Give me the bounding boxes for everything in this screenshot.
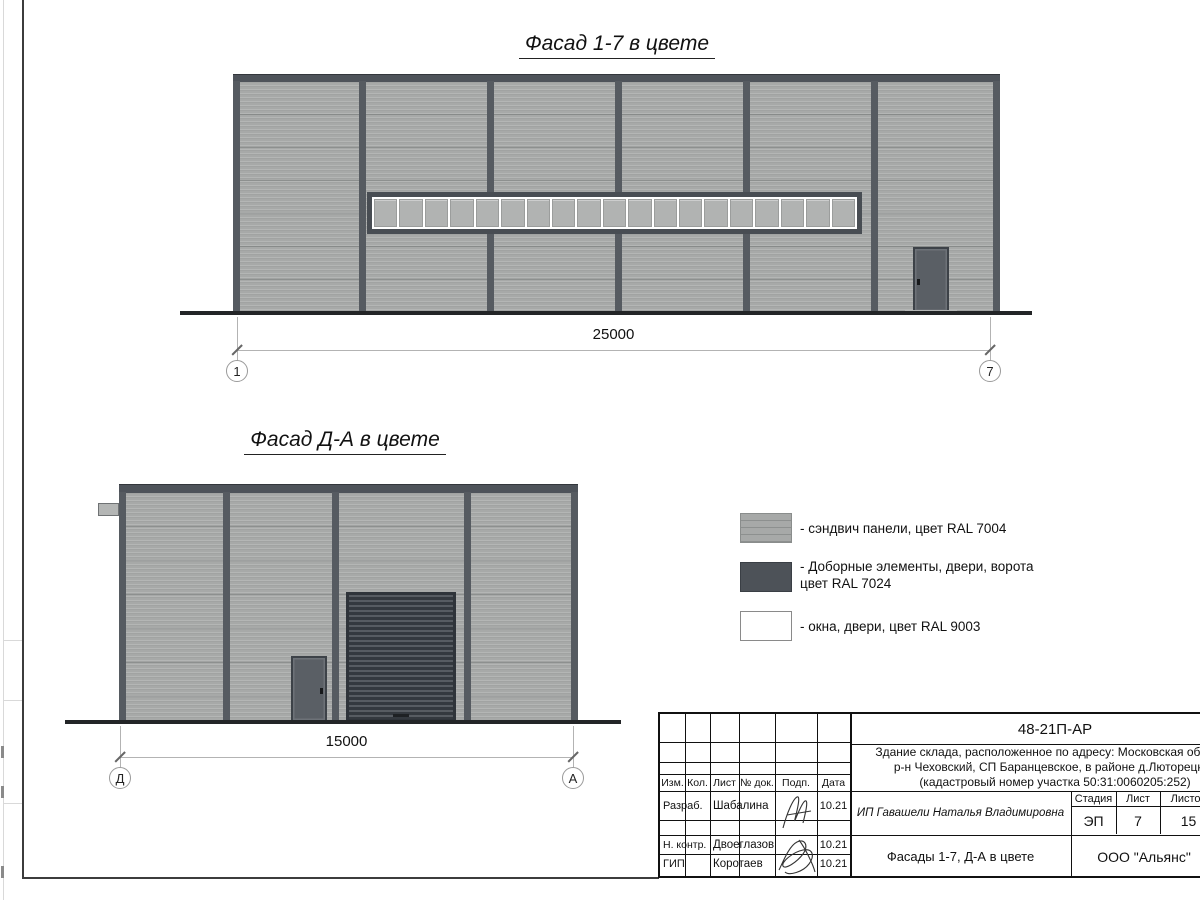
window-pane xyxy=(476,199,499,227)
facade-mullion xyxy=(332,492,339,722)
facade-d-a-title: Фасад Д-А в цвете xyxy=(180,428,510,452)
window-pane xyxy=(527,199,550,227)
sheets-label: Листов xyxy=(1160,791,1200,806)
project-description: Здание склада, расположенное по адресу: … xyxy=(852,745,1200,791)
roller-gate-handle xyxy=(393,714,409,717)
doc-number: 48-21П-АР xyxy=(850,714,1200,744)
window-pane xyxy=(832,199,855,227)
sheet-title: Фасады 1-7, Д-А в цвете xyxy=(850,835,1071,878)
col-data: Дата xyxy=(817,774,850,791)
parapet-band xyxy=(119,484,578,493)
facade-mullion xyxy=(359,81,366,313)
roller-gate xyxy=(346,592,456,722)
dimension-value: 15000 xyxy=(120,733,573,750)
margin-stamp-mark xyxy=(1,866,4,878)
col-podp: Подп. xyxy=(775,774,817,791)
titleblock-line xyxy=(660,762,850,763)
title-block: Изм. Кол. Лист № док. Подп. Дата Разраб.… xyxy=(658,712,1200,878)
description-line3: (кадастровый номер участка 50:31:0060205… xyxy=(852,775,1200,790)
margin-divider xyxy=(4,700,22,701)
signature-korotaev xyxy=(775,836,819,878)
legend-swatch-trim xyxy=(740,562,792,592)
window-pane xyxy=(755,199,778,227)
legend-label-trim-line2: цвет RAL 7024 xyxy=(800,576,891,591)
axis-label: 7 xyxy=(986,364,993,379)
facade-1-7-title-text: Фасад 1-7 в цвете xyxy=(519,32,715,59)
axis-bubble-7: 7 xyxy=(979,360,1001,382)
window-pane xyxy=(399,199,422,227)
margin-stamp-mark xyxy=(1,786,4,798)
entrance-door xyxy=(913,247,949,313)
col-doc: № док. xyxy=(739,774,775,791)
facade-1-7-elevation xyxy=(233,74,1000,313)
window-pane xyxy=(603,199,626,227)
margin-divider xyxy=(4,640,22,641)
row-date: 10.21 xyxy=(817,854,850,874)
drawing-sheet: Фасад 1-7 в цвете 25000 1 7 Фасад Д-А в … xyxy=(0,0,1200,900)
margin-stamp-mark xyxy=(1,746,4,758)
customer-name: ИП Гавашели Наталья Владимировна xyxy=(850,791,1071,835)
door-handle xyxy=(320,688,323,694)
axis-label: Д xyxy=(116,771,125,786)
facade-d-a-title-text: Фасад Д-А в цвете xyxy=(244,428,446,455)
description-line2: р-н Чеховский, СП Баранцевское, в районе… xyxy=(852,760,1200,775)
window-pane xyxy=(577,199,600,227)
extension-line xyxy=(573,726,574,767)
ground-line xyxy=(65,720,621,724)
legend-label-windows: - окна, двери, цвет RAL 9003 xyxy=(800,619,980,634)
legend-label-panels: - сэндвич панели, цвет RAL 7004 xyxy=(800,521,1006,536)
extension-line xyxy=(990,317,991,361)
window-pane xyxy=(679,199,702,227)
facade-mullion xyxy=(871,81,878,313)
window-pane xyxy=(450,199,473,227)
window-panes xyxy=(374,199,855,227)
titleblock-line xyxy=(660,742,850,743)
axis-label: А xyxy=(569,771,578,786)
axis-bubble-1: 1 xyxy=(226,360,248,382)
corner-trim-left xyxy=(233,81,240,313)
facade-mullion xyxy=(223,492,230,722)
window-pane xyxy=(374,199,397,227)
window-pane xyxy=(654,199,677,227)
col-izm: Изм. xyxy=(660,774,685,791)
facade-d-a-elevation xyxy=(119,484,578,722)
frame-left-line xyxy=(22,0,24,879)
col-kol: Кол. xyxy=(685,774,710,791)
dimension-line xyxy=(237,350,990,351)
dimension-line xyxy=(120,757,573,758)
window-pane xyxy=(425,199,448,227)
window-pane xyxy=(806,199,829,227)
row-date: 10.21 xyxy=(817,791,850,820)
legend-label-trim-line1: - Доборные элементы, двери, ворота xyxy=(800,559,1034,574)
frame-bottom-line xyxy=(22,877,659,879)
sheet-edge-line xyxy=(3,0,4,900)
sheet-value: 7 xyxy=(1116,806,1160,835)
stage-label: Стадия xyxy=(1071,791,1116,806)
corner-trim-right xyxy=(993,81,1000,313)
corner-trim-left xyxy=(119,492,126,722)
ground-line xyxy=(180,311,1032,315)
company-name: ООО "Альянс" xyxy=(1071,835,1200,878)
titleblock-line xyxy=(660,820,850,821)
row-date: 10.21 xyxy=(817,835,850,854)
dimension-value: 25000 xyxy=(237,326,990,343)
stage-value: ЭП xyxy=(1071,806,1116,835)
window-pane xyxy=(552,199,575,227)
description-line1: Здание склада, расположенное по адресу: … xyxy=(852,745,1200,760)
gutter-outlet xyxy=(98,503,119,516)
axis-bubble-a: А xyxy=(562,767,584,789)
facade-1-7-title: Фасад 1-7 в цвете xyxy=(400,32,834,56)
signature-shabalina xyxy=(777,793,817,835)
facade-mullion xyxy=(464,492,471,722)
sheets-value: 15 xyxy=(1160,806,1200,835)
window-pane xyxy=(730,199,753,227)
door-handle xyxy=(917,279,920,285)
window-pane xyxy=(781,199,804,227)
sheet-label: Лист xyxy=(1116,791,1160,806)
corner-trim-right xyxy=(571,492,578,722)
margin-divider xyxy=(4,803,22,804)
col-list: Лист xyxy=(710,774,739,791)
axis-bubble-d: Д xyxy=(109,767,131,789)
window-pane xyxy=(501,199,524,227)
window-pane xyxy=(628,199,651,227)
window-pane xyxy=(704,199,727,227)
legend-swatch-panels xyxy=(740,513,792,543)
ribbon-window-strip xyxy=(367,192,862,234)
entrance-door xyxy=(291,656,327,722)
legend-swatch-windows xyxy=(740,611,792,641)
axis-label: 1 xyxy=(233,364,240,379)
